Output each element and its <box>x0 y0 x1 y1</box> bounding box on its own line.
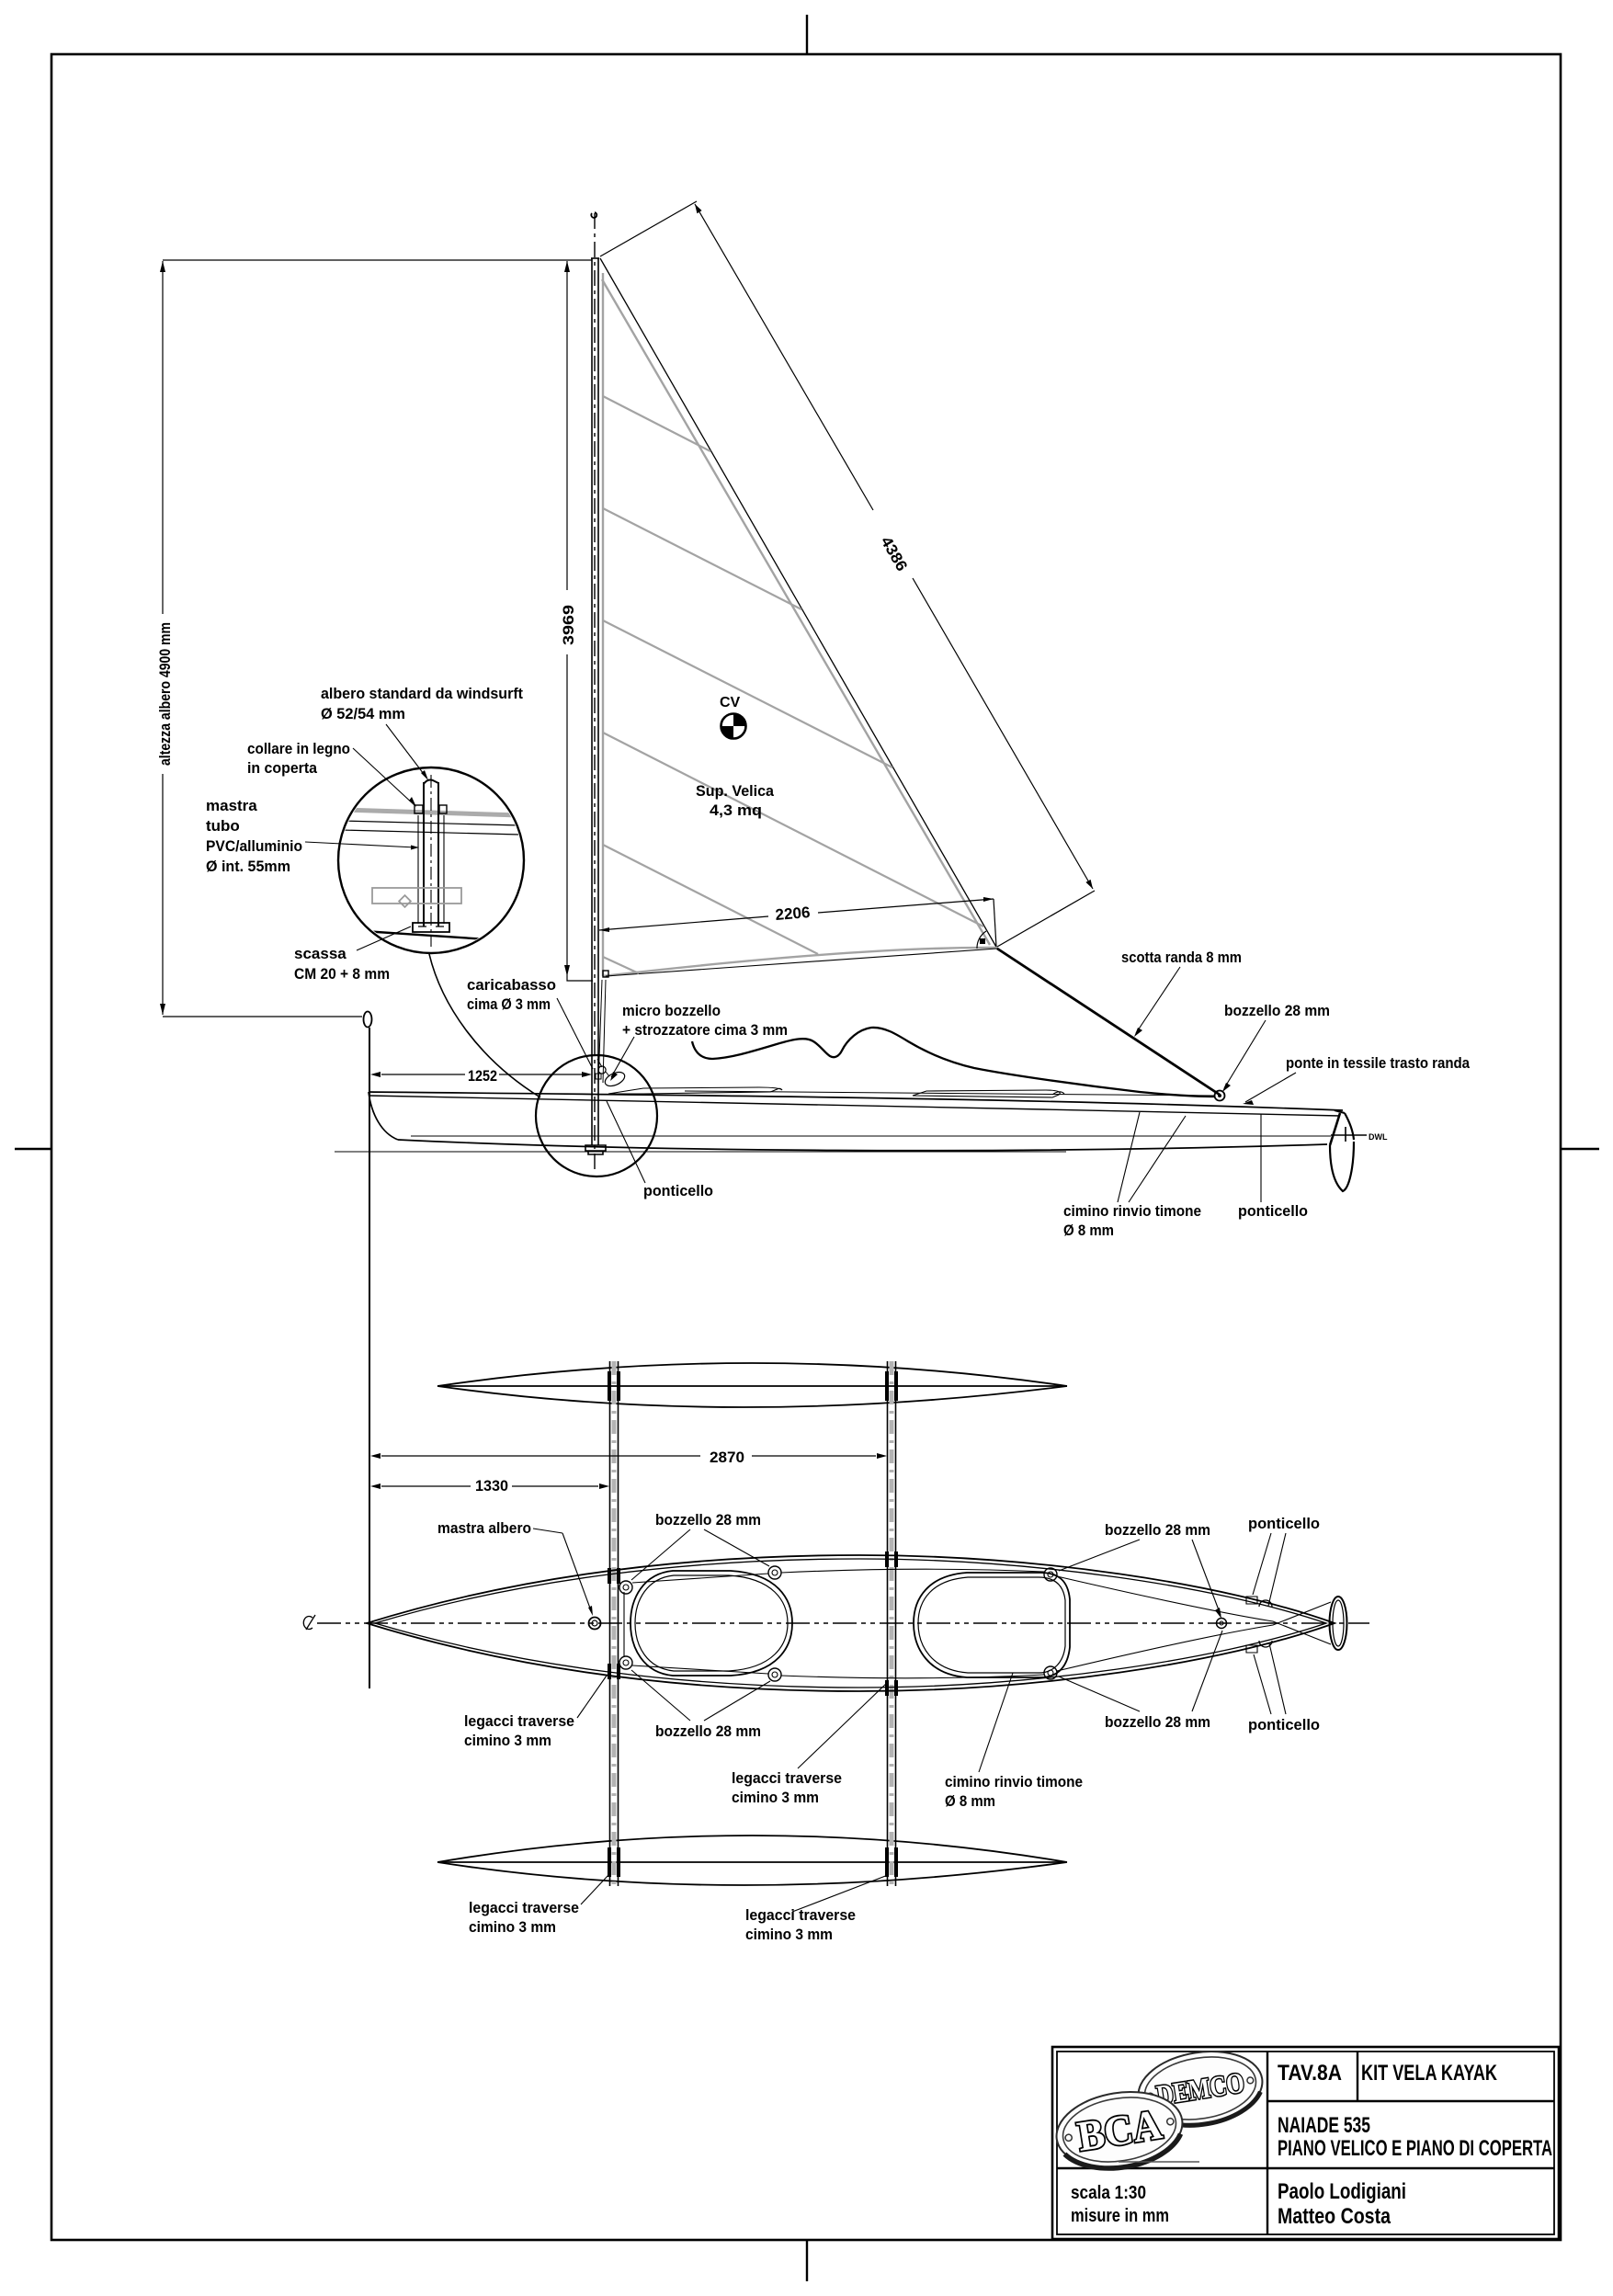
svg-text:cima Ø 3 mm: cima Ø 3 mm <box>467 995 551 1013</box>
svg-text:ponticello: ponticello <box>643 1182 713 1199</box>
svg-text:legacci traverse: legacci traverse <box>464 1712 574 1730</box>
svg-text:ponticello: ponticello <box>1248 1515 1320 1532</box>
svg-text:in coperta: in coperta <box>247 759 318 777</box>
svg-text:cimino 3 mm: cimino 3 mm <box>745 1926 833 1943</box>
svg-text:Ø 8 mm: Ø 8 mm <box>1063 1222 1114 1239</box>
svg-text:cimino rinvio timone: cimino rinvio timone <box>945 1773 1083 1790</box>
svg-text:4,3 mq: 4,3 mq <box>710 801 762 819</box>
svg-text:TAV.8A: TAV.8A <box>1278 2061 1342 2086</box>
svg-text:PVC/alluminio: PVC/alluminio <box>206 837 302 855</box>
svg-text:bozzello 28 mm: bozzello 28 mm <box>1105 1713 1210 1731</box>
svg-text:2870: 2870 <box>710 1449 744 1466</box>
svg-text:misure in mm: misure in mm <box>1071 2206 1169 2226</box>
svg-text:+ strozzatore cima 3 mm: + strozzatore cima 3 mm <box>622 1021 788 1039</box>
svg-text:CV: CV <box>720 695 741 710</box>
svg-text:Paolo Lodigiani: Paolo Lodigiani <box>1278 2179 1406 2204</box>
svg-text:cimino rinvio timone: cimino rinvio timone <box>1063 1202 1201 1220</box>
svg-text:DWL: DWL <box>1369 1132 1388 1142</box>
svg-text:micro bozzello: micro bozzello <box>622 1002 721 1019</box>
svg-text:ponte in tessile trasto randa: ponte in tessile trasto randa <box>1286 1054 1470 1072</box>
svg-text:altezza albero 4900 mm: altezza albero 4900 mm <box>156 622 174 766</box>
svg-text:bozzello 28 mm: bozzello 28 mm <box>655 1722 761 1740</box>
svg-text:mastra albero: mastra albero <box>437 1519 531 1537</box>
svg-text:1330: 1330 <box>475 1477 508 1495</box>
svg-text:Ø 52/54 mm: Ø 52/54 mm <box>321 705 405 722</box>
svg-text:CM 20 + 8 mm: CM 20 + 8 mm <box>294 965 390 983</box>
svg-text:scotta randa 8 mm: scotta randa 8 mm <box>1121 949 1242 966</box>
svg-text:1252: 1252 <box>468 1067 497 1085</box>
svg-text:bozzello 28 mm: bozzello 28 mm <box>1105 1521 1210 1539</box>
svg-text:mastra: mastra <box>206 797 257 814</box>
svg-text:3969: 3969 <box>560 605 577 645</box>
svg-text:caricabasso: caricabasso <box>467 976 556 994</box>
svg-text:collare in legno: collare in legno <box>247 740 350 757</box>
svg-text:cimino 3 mm: cimino 3 mm <box>464 1732 551 1749</box>
svg-text:NAIADE 535: NAIADE 535 <box>1278 2113 1370 2138</box>
svg-text:2206: 2206 <box>775 904 811 924</box>
svg-text:KIT VELA KAYAK: KIT VELA KAYAK <box>1361 2061 1498 2086</box>
svg-text:scassa: scassa <box>294 945 346 962</box>
svg-text:bozzello 28 mm: bozzello 28 mm <box>1224 1002 1330 1019</box>
svg-text:Ø 8 mm: Ø 8 mm <box>945 1792 995 1810</box>
svg-text:Ø int. 55mm: Ø int. 55mm <box>206 858 290 875</box>
svg-text:PIANO VELICO E PIANO DI COPERT: PIANO VELICO E PIANO DI COPERTA <box>1278 2136 1552 2161</box>
svg-text:legacci traverse: legacci traverse <box>469 1899 579 1916</box>
svg-text:albero standard da windsurft: albero standard da windsurft <box>321 685 523 702</box>
svg-text:ponticello: ponticello <box>1238 1202 1308 1220</box>
svg-text:tubo: tubo <box>206 817 240 835</box>
svg-text:scala 1:30: scala 1:30 <box>1071 2183 1146 2203</box>
svg-text:Matteo Costa: Matteo Costa <box>1278 2204 1391 2229</box>
svg-text:cimino 3 mm: cimino 3 mm <box>732 1789 819 1806</box>
svg-text:bozzello 28 mm: bozzello 28 mm <box>655 1511 761 1529</box>
svg-text:ponticello: ponticello <box>1248 1716 1320 1733</box>
svg-text:legacci traverse: legacci traverse <box>732 1769 842 1787</box>
svg-text:Sup. Velica: Sup. Velica <box>696 782 775 800</box>
svg-text:cimino 3 mm: cimino 3 mm <box>469 1918 556 1936</box>
